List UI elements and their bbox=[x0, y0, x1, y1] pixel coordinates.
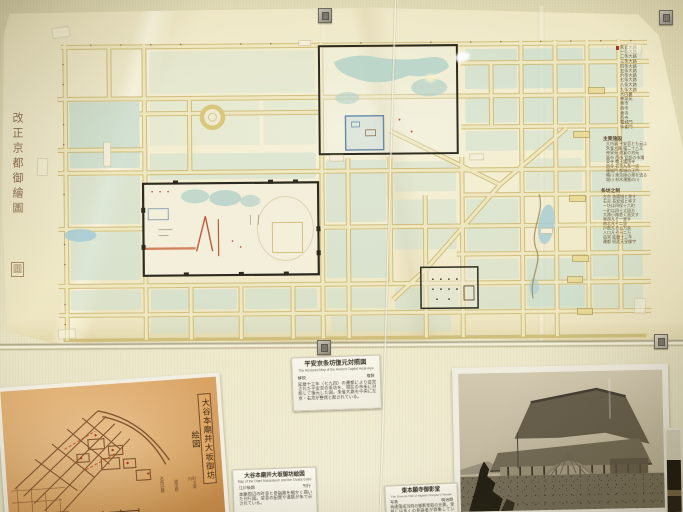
precinct-outline-b bbox=[141, 179, 321, 277]
tape-piece bbox=[634, 298, 647, 315]
foreground-tree-layer bbox=[458, 370, 665, 512]
caption-card-sepia-map: 大谷本廟并大坂御坊絵図 Map of the Otani Mausoleum a… bbox=[232, 467, 318, 512]
map-legend-mid: 大内裏 平安宮とも云ふ 朱雀大路 幅二十八丈 神泉苑 遊宴の池苑 東市 西市 官… bbox=[606, 142, 650, 182]
caption-card-temple-photo: 東本願寺御影堂 The Goei-do Hall of Higashi Hong… bbox=[384, 482, 458, 512]
card-meta-left: 解説 bbox=[298, 376, 306, 381]
map-title-seal: 圖 bbox=[11, 262, 24, 277]
road-tag bbox=[588, 87, 605, 94]
sepia-map-side-note: 道法附 bbox=[173, 480, 178, 495]
map-legend-bottom: 左京 洛陽城と称す 右京 長安城と称す 一坊は四保十六町 一町は四十丈四方 大路… bbox=[603, 195, 647, 244]
road-tag bbox=[572, 255, 589, 262]
tape-piece bbox=[37, 158, 49, 176]
map-clip bbox=[317, 340, 331, 355]
legend-red-marker bbox=[616, 46, 619, 50]
map-legend-top: 朱雀大路 一条大路 二条大路 三条大路 四条大路 五条大路 六条大路 七条大路 … bbox=[620, 45, 666, 130]
map-clip bbox=[654, 334, 668, 349]
card-body-text: 再建落成当時の御影堂前の光景。堂前には多くの参詣者が群集している。 bbox=[390, 503, 455, 512]
road-tag bbox=[567, 276, 583, 283]
temple-photo-print bbox=[458, 370, 665, 512]
card-meta-left: 江戸後期 bbox=[239, 486, 255, 491]
museum-display-photo: 改正京都御繪圖 圖 朱雀大路 一条大路 二条大路 三条大路 四条大路 五条大路 … bbox=[0, 0, 683, 512]
map-vertical-title-calligraphy: 改正京都御繪圖 bbox=[9, 112, 25, 262]
card-meta-right: 刊行 bbox=[303, 484, 311, 489]
map-clip bbox=[659, 10, 673, 25]
caption-card-main-map: 平安京条坊復元対照図 The Restored Map of the Ancie… bbox=[291, 354, 382, 411]
glass-glare-spot bbox=[425, 74, 436, 82]
conifer-tree-silhouette bbox=[468, 461, 503, 512]
card-body-text: 本廟周辺の町並と参詣路を細かく描いた刊行図。堂舎の配置や道筋が朱で示されている。 bbox=[239, 490, 313, 507]
temple-photograph bbox=[452, 363, 671, 512]
tape-piece bbox=[58, 328, 77, 339]
sepia-map-print: 大谷本廟并大坂御坊絵図 縮尺六千分一 名所旧跡 道法附 町々案内 bbox=[0, 377, 225, 512]
tape-piece bbox=[625, 42, 642, 55]
road-tag bbox=[573, 131, 590, 138]
sepia-engraved-map: 大谷本廟并大坂御坊絵図 縮尺六千分一 名所旧跡 道法附 町々案内 bbox=[0, 372, 230, 512]
map-legend-mid-header: 主要施設 bbox=[603, 136, 622, 141]
map-legend-bottom-header: 条坊之制 bbox=[601, 188, 620, 193]
road-tag bbox=[577, 308, 593, 315]
partially-visible-photo bbox=[664, 428, 683, 512]
precinct-outline-c bbox=[421, 267, 478, 308]
road-tag bbox=[569, 195, 586, 202]
card-meta-right: 複製 bbox=[367, 374, 375, 379]
map-clip bbox=[318, 8, 332, 23]
card-body-text: 延暦十三年（七九四）の遷都により造営された平安京の条坊を、現在の市街に対照して復… bbox=[298, 380, 377, 402]
sepia-map-side-note: 町々案内 bbox=[187, 476, 197, 492]
circular-mound-feature bbox=[202, 107, 223, 128]
precinct-outline-a bbox=[319, 45, 458, 154]
